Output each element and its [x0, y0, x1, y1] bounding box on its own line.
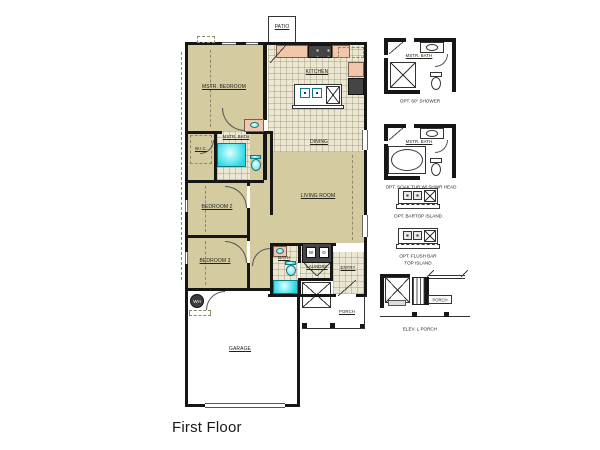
opt1-sink: [426, 44, 438, 51]
wall-right-entry: [364, 268, 367, 296]
wall-bed2-top: [188, 180, 264, 183]
wall-bath-right: [263, 131, 267, 180]
master-tub: [217, 143, 246, 167]
opt4-dishwasher-icon: [424, 230, 436, 242]
wall-bed2-bed3: [188, 235, 250, 238]
opt5-caption: ELEV. L PORCH: [403, 326, 437, 332]
bedroom3-label: BEDROOM 3: [200, 258, 231, 264]
kitchen-counter-fridge-side: [348, 62, 364, 77]
window-right-dining: [362, 130, 368, 150]
wall-hall-c: [247, 263, 250, 291]
window-right-living: [362, 215, 368, 237]
porch-label: PORCH: [339, 309, 355, 315]
option-porch-elevation: PORCH ELEV. L PORCH: [375, 270, 490, 350]
wall-garage-right: [297, 291, 300, 407]
water-heater-icon: WH: [190, 294, 204, 308]
opt2-wall-bottom: [384, 176, 420, 180]
opt1-caption: OPT. 60" SHOWER: [400, 98, 440, 104]
opt1-room-label: MSTR. BATH: [406, 53, 433, 59]
patio-outline: [268, 16, 296, 45]
kitchen-label: KITCHEN: [306, 69, 329, 75]
opt5-ground-line: [380, 316, 470, 317]
island-sink-left: [300, 88, 310, 98]
opt5-door-column: [412, 277, 425, 305]
opt5-porch-label: PORCH: [432, 297, 447, 303]
wall-bath2-laundry-a: [298, 243, 301, 263]
front-door-leaf: [338, 280, 356, 296]
opt4-flush-ledge: [396, 244, 440, 249]
refrigerator-icon: [348, 78, 364, 95]
island-bartop-ledge: [292, 105, 344, 109]
wall-mbr-right: [263, 42, 267, 120]
entry-label: ENTRY: [341, 265, 356, 271]
window-left-bed3: [185, 252, 188, 264]
garage-label: GARAGE: [229, 346, 251, 352]
opt1-toilet-bowl: [431, 77, 441, 90]
wall-left: [185, 42, 188, 407]
opt3-sink-left: [403, 191, 412, 200]
pantry-shelves: [338, 47, 364, 58]
dim-line-exterior-left: [181, 52, 182, 280]
master-vanity-sink: [250, 122, 259, 128]
master-toilet-bowl: [251, 159, 261, 171]
main-floor-plan: PATIO: [0, 0, 380, 450]
opt1-wall-tl-v: [384, 38, 388, 55]
floor-plan-sheet: PATIO: [0, 0, 600, 450]
bath2-sink: [276, 248, 284, 254]
wall-bed3-bottom: [185, 288, 272, 291]
garage-entry-door: [206, 291, 225, 310]
opt1-wall-left: [384, 58, 388, 94]
island-sink-right: [312, 88, 322, 98]
opt5-beam-tick-left: [427, 270, 434, 277]
dim-line-living: [352, 155, 353, 240]
opt2-toilet-bowl: [431, 163, 441, 176]
wall-hall-living-a: [270, 131, 273, 215]
opt3-bartop-ledge: [396, 204, 440, 209]
wall-house-bottom-a: [268, 294, 336, 297]
patio-label: PATIO: [275, 24, 290, 30]
option-shower: MSTR. BATH OPT. 60" SHOWER: [375, 30, 490, 115]
laundry-label: LAUNDRY: [306, 264, 327, 270]
range-icon: [308, 45, 332, 58]
dining-label: DINING: [310, 139, 328, 145]
opt1-wall-bottom: [384, 90, 420, 94]
opt5-post-1: [412, 312, 417, 317]
options-column: MSTR. BATH OPT. 60" SHOWER MSTR. BATH OP…: [375, 30, 490, 350]
water-heater-label: WH: [193, 299, 201, 304]
dryer-icon: D: [319, 247, 329, 258]
opt4-sink-left: [403, 231, 412, 240]
opt3-caption: OPT. BARTOP ISLAND: [394, 213, 442, 219]
wall-hall-a: [247, 180, 250, 186]
master-bedroom-label: MSTR. BEDROOM: [202, 84, 246, 90]
bath2-tub: [273, 280, 298, 294]
wic-label: W.I.C.: [195, 146, 207, 152]
garage-door: [205, 403, 285, 408]
patio-door-leaf: [270, 45, 286, 63]
opt5-post-2: [444, 312, 449, 317]
opt2-door-leaf: [389, 128, 403, 140]
opt3-dishwasher-icon: [424, 190, 436, 202]
opt5-bench: [388, 300, 406, 306]
window-top-2: [246, 42, 258, 45]
bath2-toilet-bowl: [286, 265, 296, 276]
wall-house-bottom-b: [356, 294, 367, 297]
opt1-shower-icon: [390, 62, 416, 88]
opt2-wall-tl-v: [384, 124, 388, 141]
opt4-caption-line2: TOP ISLAND: [404, 260, 431, 266]
bedroom2-label: BEDROOM 2: [202, 204, 233, 210]
opt4-caption-line1: OPT. FLUSH BAR: [399, 253, 436, 259]
opt5-beam: [429, 275, 465, 279]
opt2-room-label: MSTR. BATH: [406, 139, 433, 145]
opt1-door-arc: [435, 54, 448, 67]
opt2-tub-icon: [391, 149, 423, 171]
washer-icon: W: [306, 247, 316, 258]
window-left-bed2: [185, 200, 188, 212]
porch-edge-bottom: [302, 328, 365, 329]
water-heater-pad: [189, 310, 211, 316]
opt2-wall-right: [452, 124, 456, 178]
master-bath-label: MSTR. BATH: [223, 134, 250, 140]
opt3-sink-right: [413, 191, 422, 200]
window-top-1: [222, 42, 236, 45]
wall-laundry-bottom: [300, 278, 333, 281]
porch-post-2: [330, 323, 335, 328]
dishwasher-icon: [326, 86, 340, 104]
opt5-beam-tick-right: [461, 270, 468, 277]
bath2-label: BATH: [278, 255, 290, 261]
porch-post-1: [302, 323, 307, 328]
dryer-label: D: [322, 250, 325, 255]
living-room-label: LIVING ROOM: [301, 193, 335, 199]
porch-corner-mark: [360, 324, 364, 328]
opt1-door-leaf: [389, 42, 403, 54]
opt2-sink: [426, 130, 438, 137]
opt1-wall-right: [452, 38, 456, 92]
sheet-title: First Floor: [172, 419, 242, 436]
porch-edge-right: [364, 296, 365, 329]
washer-label: W: [309, 250, 313, 255]
opt4-sink-right: [413, 231, 422, 240]
opt2-door-arc: [435, 140, 448, 153]
ceiling-note-box: [197, 36, 215, 43]
opt5-wall-left: [380, 274, 384, 308]
